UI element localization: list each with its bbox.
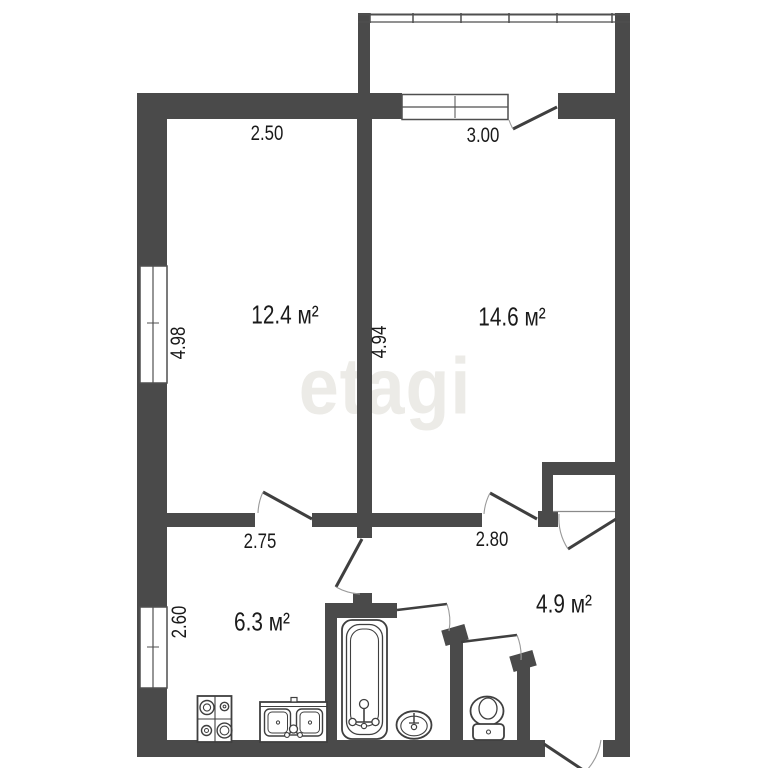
door-room-large [484, 493, 537, 519]
door-bathroom [336, 539, 362, 594]
room-label-living-small: 12.4 м² [251, 300, 319, 331]
door-room-small [258, 492, 312, 519]
wall-right [615, 13, 630, 757]
door-bath-inner [397, 604, 450, 631]
dim-center: 4.94 [368, 326, 392, 359]
toilet [471, 697, 505, 741]
door-closet [559, 514, 616, 549]
room-label-kitchen: 6.3 м² [234, 607, 290, 638]
door-balcony [509, 107, 557, 129]
dim-top-right: 3.00 [467, 124, 500, 148]
wall-closet-left [542, 475, 553, 511]
wall-top-left [137, 93, 402, 119]
dim-left-upper: 4.98 [167, 327, 191, 360]
door-entrance [544, 740, 601, 768]
doors [258, 107, 616, 768]
window-living-large [402, 95, 508, 120]
wall-closet-top [542, 462, 630, 475]
dim-mid-left: 2.75 [244, 530, 277, 554]
room-label-hallway: 4.9 м² [536, 589, 592, 620]
dim-mid-right: 2.80 [476, 528, 509, 552]
wall-middle-b [312, 513, 482, 527]
kitchen-sink [260, 698, 327, 743]
wash-basin [397, 711, 432, 739]
window-kitchen [140, 607, 167, 688]
wall-bath-nib [353, 593, 372, 603]
wall-bath-wc-divider [450, 635, 463, 742]
wall-wc-right [517, 660, 530, 742]
room-label-living-large: 14.6 м² [478, 302, 546, 333]
dim-left-lower: 2.60 [168, 606, 192, 639]
wall-bottom-right [603, 740, 630, 757]
wall-middle-a [140, 513, 255, 527]
wall-balcony-left [358, 13, 370, 93]
floor-plan-drawing [0, 0, 768, 768]
wall-niche-block [538, 511, 558, 527]
bathtub [342, 620, 387, 739]
floor-plan: etagi [0, 0, 768, 768]
window-living-small [140, 266, 167, 383]
balcony-glazing [358, 13, 630, 23]
stove [198, 696, 232, 742]
dim-top-left: 2.50 [251, 122, 284, 146]
wall-wc-top-block [509, 650, 536, 672]
